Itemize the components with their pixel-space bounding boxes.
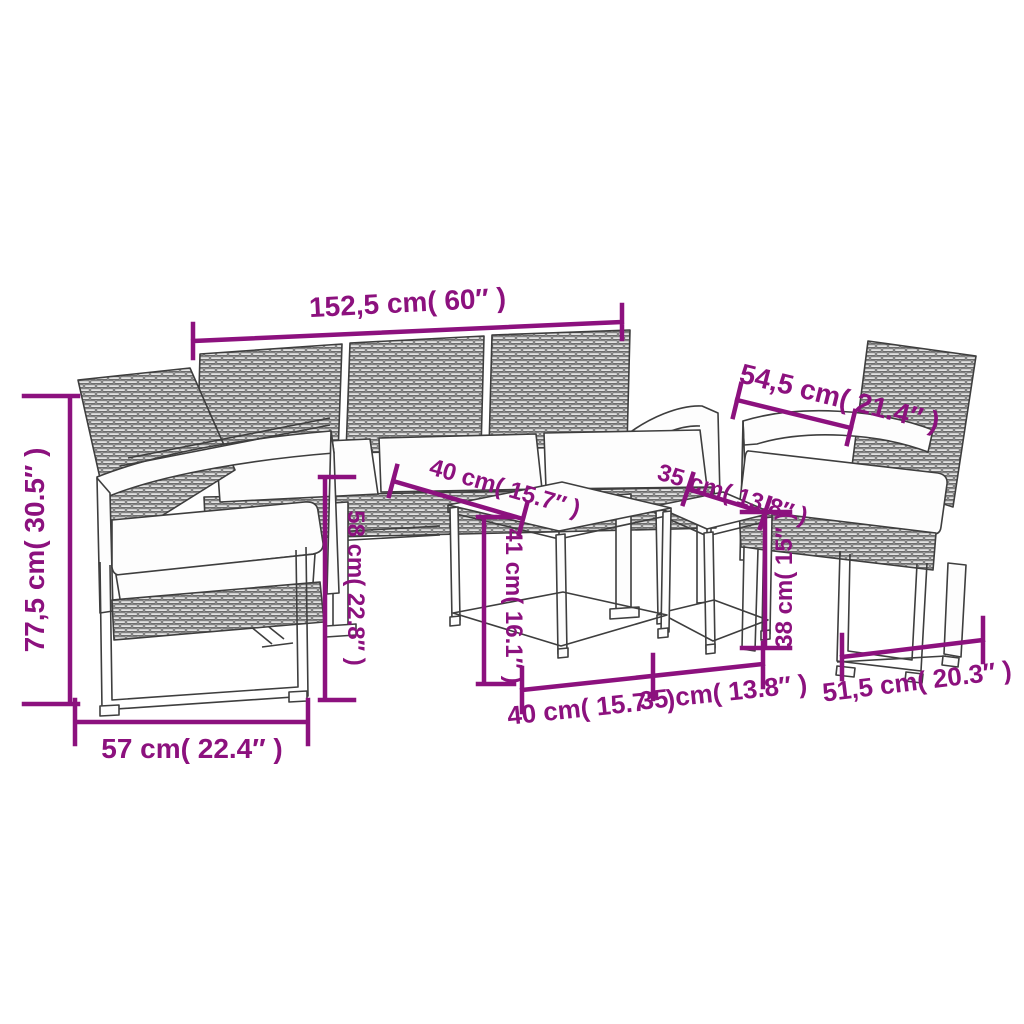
large-table-foot-c [658,628,668,638]
small-table-leg-front [704,532,715,649]
armchair-right-leg-left [742,547,758,651]
sofa-leg-middle-right-foot [610,607,639,619]
large-table-leg-back-left [450,507,460,621]
large-table-foot-b [558,648,568,658]
armchair-left-foot-front [100,705,119,716]
diagram-canvas: 152,5 cm( 60″ ) 54,5 cm( 21.4″ ) 77,5 cm… [0,0,1024,1024]
large-table-leg-front [556,534,567,654]
dim-label-sofa-width: 152,5 cm( 60″ ) [308,282,506,323]
dim-label-armchair-width: 57 cm( 22.4″ ) [101,733,283,764]
armchair-right-leg-frame-inner [848,554,917,660]
large-table-foot-a [450,616,460,626]
small-table-foot-b [706,644,715,654]
dim-label-small-table-height: 38 cm( 15″ ) [771,512,798,648]
dim-label-large-table-height: 41 cm( 16.1″ ) [500,528,527,684]
dim-label-seat-back-height: 58 cm( 22.8″ ) [342,510,369,666]
product-dimension-diagram: 152,5 cm( 60″ ) 54,5 cm( 21.4″ ) 77,5 cm… [0,0,1024,1024]
dim-label-overall-height: 77,5 cm( 30.5″ ) [19,448,50,653]
armchair-left-foot-rear [289,691,307,702]
